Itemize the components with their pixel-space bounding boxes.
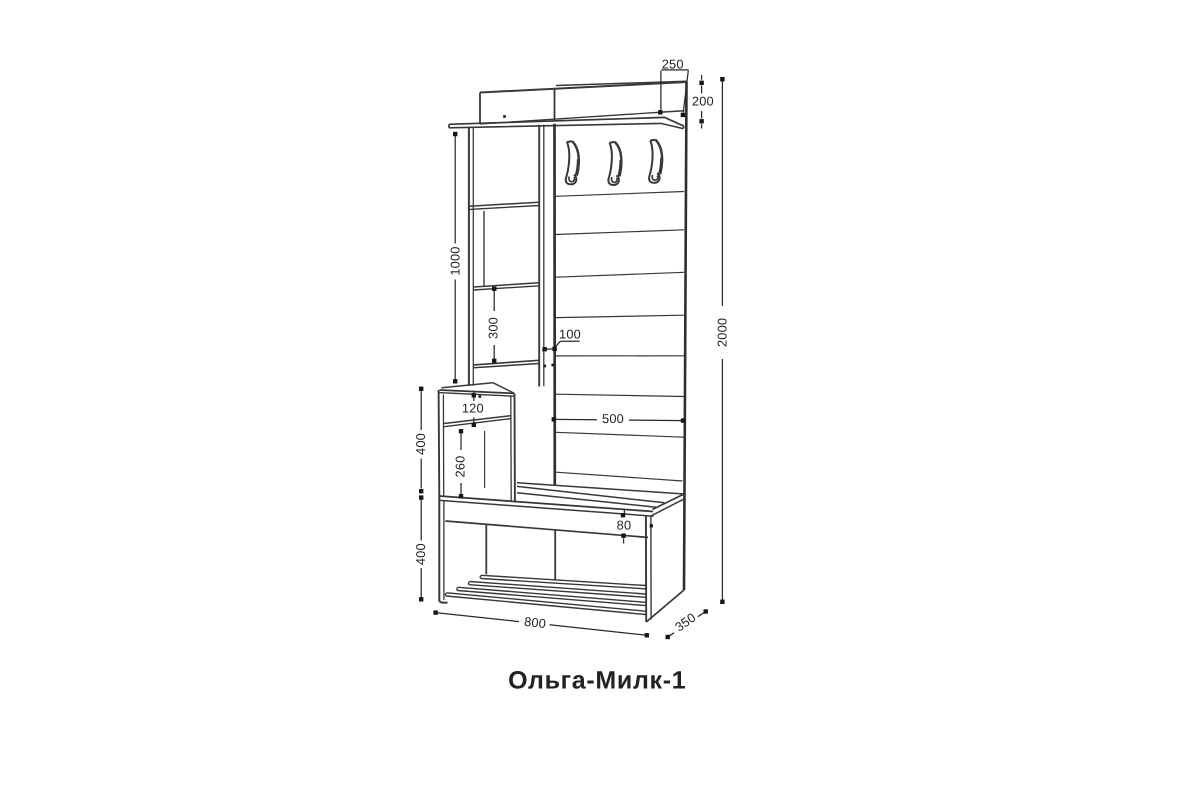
svg-text:200: 200	[692, 94, 714, 109]
svg-text:250: 250	[662, 56, 684, 71]
svg-text:400: 400	[413, 543, 428, 565]
svg-text:100: 100	[559, 327, 581, 342]
svg-text:260: 260	[452, 456, 467, 478]
svg-text:1000: 1000	[447, 246, 462, 275]
svg-text:Ольга-Милк-1: Ольга-Милк-1	[508, 666, 686, 694]
svg-text:800: 800	[523, 614, 546, 631]
svg-text:120: 120	[462, 401, 484, 416]
svg-text:300: 300	[485, 317, 500, 339]
svg-text:2000: 2000	[715, 318, 730, 347]
svg-text:500: 500	[602, 411, 624, 426]
svg-text:400: 400	[413, 433, 428, 455]
svg-text:80: 80	[617, 517, 632, 532]
